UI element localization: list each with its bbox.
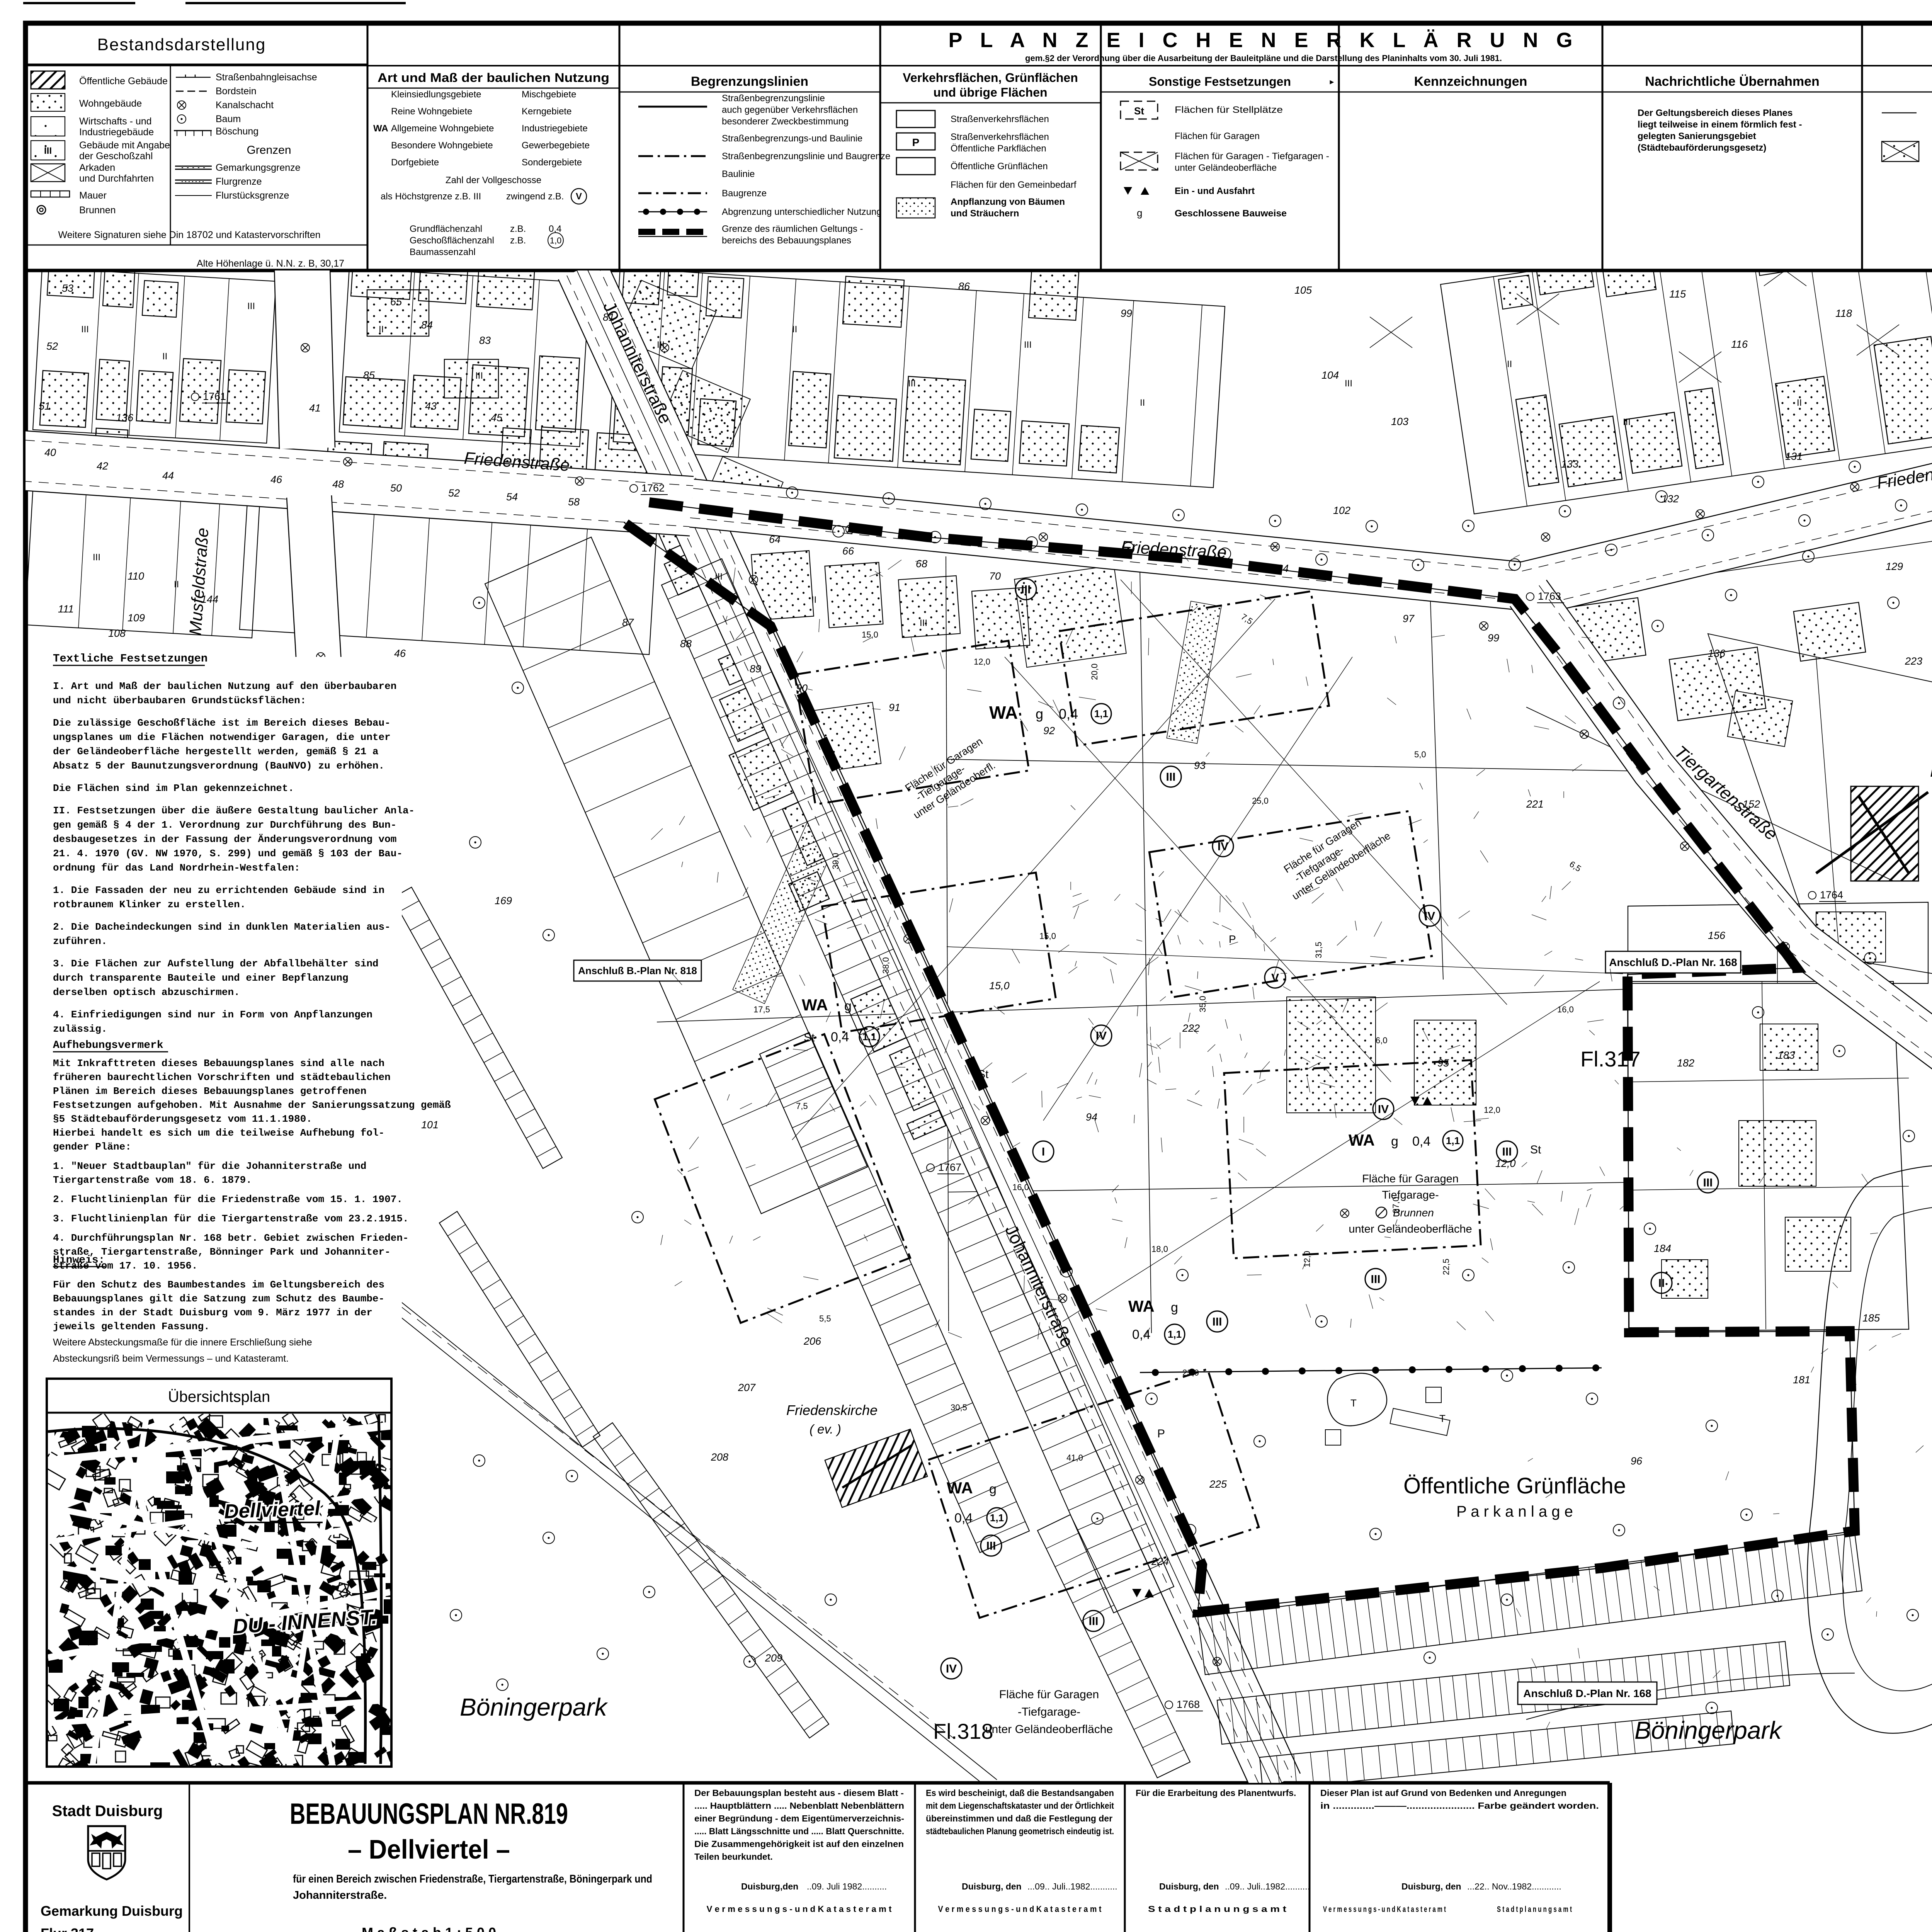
svg-text:Baumassenzahl: Baumassenzahl <box>410 247 476 257</box>
svg-text:besonderer Zweckbestimmung: besonderer Zweckbestimmung <box>722 116 849 127</box>
svg-text:III: III <box>1021 583 1031 596</box>
svg-text:94: 94 <box>1086 1111 1097 1123</box>
svg-text:1,1: 1,1 <box>1168 1328 1182 1340</box>
svg-text:Flächen für Stellplätze: Flächen für Stellplätze <box>1175 105 1283 115</box>
svg-text:0,4: 0,4 <box>954 1511 973 1526</box>
svg-text:III: III <box>1371 1273 1380 1286</box>
svg-text:WA: WA <box>1128 1297 1155 1315</box>
svg-text:183: 183 <box>1777 1049 1795 1061</box>
svg-text:IV: IV <box>1424 910 1435 923</box>
svg-text:Kennzeichnungen: Kennzeichnungen <box>1414 74 1527 89</box>
svg-text:und Sträuchern: und Sträuchern <box>951 208 1019 219</box>
svg-text:132: 132 <box>1662 493 1679 505</box>
svg-text:Tiergartenstraße vom 18. 6. 18: Tiergartenstraße vom 18. 6. 1879. <box>53 1174 252 1186</box>
svg-text:41: 41 <box>309 402 321 414</box>
svg-text:1763: 1763 <box>1538 590 1561 602</box>
svg-text:..... Blatt Längsschnitte und: ..... Blatt Längsschnitte und ..... Blat… <box>694 1826 904 1836</box>
svg-text:zulässig.: zulässig. <box>53 1023 107 1035</box>
svg-text:St: St <box>804 1031 815 1044</box>
svg-text:auch gegenüber Verkehrsflächen: auch gegenüber Verkehrsflächen <box>722 105 858 115</box>
svg-text:Art und Maß der baulichen Nutz: Art und Maß der baulichen Nutzung <box>378 71 609 85</box>
svg-text:184: 184 <box>1654 1243 1671 1254</box>
svg-text:unter Geländeoberfläche: unter Geländeoberfläche <box>1349 1223 1472 1235</box>
svg-text:St: St <box>1134 105 1144 117</box>
svg-text:Teilen beurkundet.: Teilen beurkundet. <box>694 1852 773 1862</box>
svg-text:Anschluß D.-Plan Nr. 168: Anschluß D.-Plan Nr. 168 <box>1609 956 1737 968</box>
svg-text:und nicht überbaubaren Grundst: und nicht überbaubaren Grundstücksfläche… <box>53 695 306 706</box>
svg-text:Industriegebäude: Industriegebäude <box>79 127 154 138</box>
svg-text:16,0: 16,0 <box>1557 1005 1574 1014</box>
svg-text:3. Fluchtlinienplan für die Ti: 3. Fluchtlinienplan für die Tiergartenst… <box>53 1213 409 1225</box>
svg-text:40: 40 <box>44 447 56 458</box>
svg-text:T: T <box>1439 1413 1446 1424</box>
svg-text:Wirtschafts - und: Wirtschafts - und <box>79 116 152 127</box>
svg-text:27,0: 27,0 <box>1391 1197 1401 1213</box>
svg-text:35,0: 35,0 <box>1198 996 1207 1012</box>
svg-text:95: 95 <box>1437 1057 1449 1069</box>
svg-text:50: 50 <box>390 482 402 494</box>
svg-text:P: P <box>1229 933 1236 945</box>
svg-text:III: III <box>1212 1316 1222 1328</box>
svg-text:12,0: 12,0 <box>1484 1105 1500 1115</box>
svg-text:►: ► <box>1328 78 1335 86</box>
svg-text:12,0: 12,0 <box>1302 1251 1312 1267</box>
svg-text:87: 87 <box>622 617 634 628</box>
svg-text:99: 99 <box>1121 308 1132 319</box>
svg-text:jeweils geltenden Fassung.: jeweils geltenden Fassung. <box>53 1321 210 1332</box>
svg-text:Der Geltungsbereich dieses Pla: Der Geltungsbereich dieses Planes <box>1638 108 1793 118</box>
svg-text:108: 108 <box>108 628 126 639</box>
svg-text:derselben optisch abzuschirmen: derselben optisch abzuschirmen. <box>53 986 240 998</box>
svg-text:Straßenverkehrsflächen: Straßenverkehrsflächen <box>951 114 1049 124</box>
svg-text:bereichs des Bebauungsplanes: bereichs des Bebauungsplanes <box>722 235 851 246</box>
svg-text:übereinstimmen und daß die Fes: übereinstimmen und daß die Festlegung de… <box>926 1813 1112 1823</box>
svg-text:4. Einfriedigungen sind nur in: 4. Einfriedigungen sind nur in Form von … <box>53 1009 372 1020</box>
svg-text:Straßenbegrenzungslinie: Straßenbegrenzungslinie <box>722 93 825 104</box>
svg-text:30,5: 30,5 <box>951 1403 967 1412</box>
svg-text:III: III <box>81 324 89 335</box>
svg-text:z.B.: z.B. <box>510 235 526 246</box>
svg-text:144: 144 <box>201 594 218 605</box>
svg-text:103: 103 <box>1391 416 1408 427</box>
svg-text:96: 96 <box>1631 1455 1643 1467</box>
svg-text:15,0: 15,0 <box>1039 931 1056 941</box>
svg-text:einer Begründung - dem Eigen: einer Begründung - dem Eigentümerverzeic… <box>694 1813 904 1823</box>
svg-text:III: III <box>715 571 723 582</box>
svg-text:WA: WA <box>802 996 828 1014</box>
svg-text:131: 131 <box>1785 451 1803 462</box>
svg-text:0,4: 0,4 <box>1412 1134 1430 1149</box>
svg-text:Die Zusammengehörigkeit ist a: Die Zusammengehörigkeit ist auf den einz… <box>694 1839 904 1849</box>
svg-text:WA: WA <box>989 702 1018 723</box>
svg-text:221: 221 <box>1526 798 1544 810</box>
svg-text:58: 58 <box>568 496 580 508</box>
svg-text:und übrige Flächen: und übrige Flächen <box>933 85 1047 99</box>
svg-text:Böningerpark: Böningerpark <box>1634 1716 1783 1744</box>
svg-text:g: g <box>1171 1300 1178 1315</box>
svg-text:115: 115 <box>1669 288 1686 300</box>
svg-text:182: 182 <box>1677 1057 1694 1069</box>
svg-text:II: II <box>792 324 797 335</box>
svg-text:Bebauungsplanes gilt die Satzu: Bebauungsplanes gilt die Satzung zum Sch… <box>53 1293 384 1304</box>
svg-text:V e r m e s s u n g s - u n: V e r m e s s u n g s - u n d K a t a s … <box>707 1904 892 1914</box>
svg-text:65: 65 <box>390 296 402 308</box>
svg-text:Flurgrenze: Flurgrenze <box>216 176 262 187</box>
svg-text:Absatz 5 der Baunutzungsverord: Absatz 5 der Baunutzungsverordnung (BauN… <box>53 760 384 772</box>
svg-text:16,0: 16,0 <box>1012 1182 1029 1192</box>
svg-text:17,5: 17,5 <box>753 1005 770 1014</box>
svg-text:208: 208 <box>711 1451 728 1463</box>
svg-text:68: 68 <box>916 558 927 570</box>
svg-text:Die zulässige Geschoßfläche is: Die zulässige Geschoßfläche ist im Berei… <box>53 717 391 729</box>
svg-text:2. Die Dacheindeckungen sind i: 2. Die Dacheindeckungen sind in dunklen … <box>53 921 391 933</box>
svg-text:Duisburg, den: Duisburg, den <box>1401 1881 1461 1891</box>
svg-text:II: II <box>1507 359 1512 369</box>
svg-text:g: g <box>989 1482 997 1497</box>
svg-text:Geschlossene Bauweise: Geschlossene Bauweise <box>1175 208 1287 219</box>
svg-text:5,5: 5,5 <box>819 1314 831 1323</box>
svg-text:Grenzen: Grenzen <box>247 144 291 156</box>
svg-text:Fl.317: Fl.317 <box>1580 1047 1641 1071</box>
svg-text:44: 44 <box>162 470 174 481</box>
svg-text:15,0: 15,0 <box>989 980 1010 992</box>
svg-text:Dellviertel: Dellviertel <box>224 1497 321 1523</box>
svg-text:81: 81 <box>603 311 614 323</box>
svg-text:II: II <box>1658 1277 1665 1290</box>
svg-text:Hierbei handelt es sich um die: Hierbei handelt es sich um die teilweise… <box>53 1127 384 1139</box>
svg-text:...09.. Juli..1982...........: ...09.. Juli..1982........... <box>1027 1881 1117 1891</box>
svg-text:Fläche für Garagen: Fläche für Garagen <box>999 1688 1099 1701</box>
svg-text:18,0: 18,0 <box>1151 1244 1168 1254</box>
svg-text:gender Pläne:: gender Pläne: <box>53 1141 131 1153</box>
svg-text:1768: 1768 <box>1177 1699 1200 1710</box>
svg-text:Straßenbegrenzungs-und Baulin: Straßenbegrenzungs-und Baulinie <box>722 133 862 144</box>
svg-text:Straßenbegrenzungslinie und B: Straßenbegrenzungslinie und Baugrenze <box>722 151 890 162</box>
svg-text:..09. Juli 1982..........: ..09. Juli 1982.......... <box>807 1881 887 1891</box>
svg-text:Geschoßflächenzahl: Geschoßflächenzahl <box>410 235 494 246</box>
svg-text:38,0: 38,0 <box>881 957 891 974</box>
svg-text:II: II <box>174 579 179 590</box>
svg-text:Mit Inkrafttreten dieses Bebau: Mit Inkrafttreten dieses Bebauungsplanes… <box>53 1058 384 1069</box>
svg-text:III: III <box>1502 1146 1512 1158</box>
svg-text:Johanniterstraße.: Johanniterstraße. <box>293 1889 387 1901</box>
svg-text:Sondergebiete: Sondergebiete <box>522 157 582 168</box>
svg-text:Zahl der Vollgeschosse: Zahl der Vollgeschosse <box>446 175 541 185</box>
svg-text:Bordstein: Bordstein <box>216 86 257 97</box>
svg-text:90: 90 <box>796 682 808 694</box>
svg-text:Dorfgebiete: Dorfgebiete <box>391 157 439 168</box>
svg-text:224: 224 <box>1151 1556 1169 1567</box>
svg-text:223: 223 <box>1905 655 1922 667</box>
svg-text:129: 129 <box>1886 561 1903 572</box>
svg-text:WA: WA <box>1349 1131 1375 1149</box>
svg-text:41,0: 41,0 <box>1066 1453 1083 1463</box>
svg-text:105: 105 <box>1294 284 1312 296</box>
svg-text:Duisburg, den: Duisburg, den <box>962 1881 1022 1891</box>
svg-text:der Geländeoberfläche hergeste: der Geländeoberfläche hergestellt werden… <box>53 746 379 757</box>
svg-text:in ..............———..........: in ..............———....................… <box>1320 1801 1599 1811</box>
svg-text:Es wird bescheinigt, daß die B: Es wird bescheinigt, daß die Bestandsang… <box>926 1788 1114 1798</box>
svg-text:Öffentliche Parkflächen: Öffentliche Parkflächen <box>951 143 1046 154</box>
svg-text:Kleinsiedlungsgebiete: Kleinsiedlungsgebiete <box>391 89 481 100</box>
svg-text:Allgemeine Wohngebiete: Allgemeine Wohngebiete <box>391 123 494 134</box>
svg-text:Kirche: Kirche <box>1930 762 1932 780</box>
svg-text:z.B.: z.B. <box>510 224 526 234</box>
svg-text:III: III <box>920 618 927 628</box>
svg-text:P: P <box>1157 1427 1165 1440</box>
svg-text:Reine Wohngebiete: Reine Wohngebiete <box>391 106 472 117</box>
svg-text:Flur 317: Flur 317 <box>41 1925 94 1932</box>
svg-text:Duisburg, den: Duisburg, den <box>1159 1881 1219 1891</box>
svg-text:Gemarkungsgrenze: Gemarkungsgrenze <box>216 162 301 173</box>
svg-text:169: 169 <box>495 895 512 906</box>
svg-text:Stadt Duisburg: Stadt Duisburg <box>52 1803 163 1820</box>
svg-text:II: II <box>162 351 167 362</box>
svg-text:89: 89 <box>750 663 761 675</box>
svg-text:97: 97 <box>1403 613 1415 624</box>
svg-text:Öffentliche Grünflächen: Öffentliche Grünflächen <box>951 161 1048 172</box>
svg-text:III: III <box>1088 1615 1098 1628</box>
svg-text:0,4: 0,4 <box>831 1030 849 1044</box>
svg-text:– Dellviertel –: – Dellviertel – <box>348 1834 510 1864</box>
svg-text:118: 118 <box>1835 308 1852 319</box>
svg-text:g: g <box>1137 207 1142 219</box>
svg-text:III: III <box>986 1540 996 1553</box>
svg-text:1767: 1767 <box>938 1162 961 1173</box>
svg-text:Der Bebauungsplan besteht aus: Der Bebauungsplan besteht aus - diesem B… <box>694 1788 904 1798</box>
svg-text:53: 53 <box>62 282 73 294</box>
svg-text:Anschluß D.-Plan Nr. 168: Anschluß D.-Plan Nr. 168 <box>1523 1687 1651 1699</box>
svg-text:Dieser Plan ist auf Grund von: Dieser Plan ist auf Grund von Bedenken u… <box>1320 1788 1566 1798</box>
svg-text:g: g <box>844 999 852 1014</box>
svg-text:Flurstücksgrenze: Flurstücksgrenze <box>216 190 289 201</box>
svg-text:V: V <box>1271 972 1279 985</box>
svg-text:durch transparente Bauteile un: durch transparente Bauteile und einer Be… <box>53 972 349 984</box>
svg-text:85: 85 <box>363 369 375 381</box>
svg-text:54: 54 <box>506 491 518 503</box>
svg-text:Für den Schutz des Baumbestand: Für den Schutz des Baumbestandes im Gelt… <box>53 1279 384 1291</box>
svg-text:23,0: 23,0 <box>1182 1368 1199 1378</box>
svg-text:V e r m e s s u n g s - u n d: V e r m e s s u n g s - u n d K a t a s … <box>938 1904 1102 1914</box>
svg-text:§5 Städtebauförderungsgesetz v: §5 Städtebauförderungsgesetz vom 11.1.19… <box>53 1113 312 1125</box>
svg-text:84: 84 <box>421 319 433 331</box>
svg-text:WA: WA <box>947 1479 973 1497</box>
svg-text:desbaugesetzes in der Fassung: desbaugesetzes in der Fassung der Änderu… <box>53 833 396 845</box>
svg-text:92: 92 <box>1043 725 1055 736</box>
svg-text:Öffentliche Grünfläche: Öffentliche Grünfläche <box>1403 1473 1626 1498</box>
svg-text:III: III <box>44 146 52 156</box>
svg-text:P L A N Z E I C H E N E R K L: P L A N Z E I C H E N E R K L Ä R U N G <box>948 29 1578 52</box>
svg-text:51: 51 <box>39 400 50 412</box>
svg-text:mit dem Liegenschaftskataster: mit dem Liegenschaftskataster und der Ör… <box>926 1801 1114 1811</box>
svg-text:P: P <box>912 136 920 148</box>
svg-text:15,0: 15,0 <box>862 630 878 639</box>
svg-text:Begrenzungslinien: Begrenzungslinien <box>691 74 808 89</box>
svg-text:Böningerpark: Böningerpark <box>460 1693 608 1721</box>
svg-text:64: 64 <box>769 534 781 545</box>
svg-text:25,0: 25,0 <box>1252 796 1269 806</box>
svg-text:V: V <box>576 191 582 202</box>
svg-text:12,0: 12,0 <box>974 657 990 667</box>
svg-text:zuführen.: zuführen. <box>53 935 107 947</box>
svg-text:III: III <box>908 378 916 389</box>
svg-text:2. Fluchtlinienplan für die Fr: 2. Fluchtlinienplan für die Friedenstraß… <box>53 1194 403 1205</box>
svg-text:99: 99 <box>1488 632 1499 644</box>
svg-text:Die Flächen sind im Plan geken: Die Flächen sind im Plan gekennzeichnet. <box>53 782 294 794</box>
svg-text:ordnung für das Land Nordrhein: ordnung für das Land Nordrhein-Westfalen… <box>53 862 300 874</box>
svg-text:Verkehrsflächen, Grünflächen: Verkehrsflächen, Grünflächen <box>903 71 1078 85</box>
svg-text:Friedenskirche: Friedenskirche <box>786 1402 878 1418</box>
svg-text:Besondere Wohngebiete: Besondere Wohngebiete <box>391 140 493 151</box>
svg-text:der Geschoßzahl: der Geschoßzahl <box>79 151 153 162</box>
svg-text:III: III <box>93 552 100 563</box>
svg-text:gelegten Sanierungsgebiet: gelegten Sanierungsgebiet <box>1638 131 1756 141</box>
svg-text:66: 66 <box>842 545 854 557</box>
svg-text:Wohngebäude: Wohngebäude <box>79 98 142 109</box>
svg-text:88: 88 <box>680 638 692 650</box>
svg-text:WA: WA <box>373 123 388 134</box>
svg-text:225: 225 <box>1209 1478 1227 1490</box>
svg-text:IV: IV <box>946 1663 957 1675</box>
svg-text:IV: IV <box>1096 1030 1107 1043</box>
svg-text:Gewerbegebiete: Gewerbegebiete <box>522 140 590 151</box>
svg-text:1,1: 1,1 <box>1094 708 1108 719</box>
svg-text:1761: 1761 <box>203 391 226 402</box>
svg-text:II. Festsetzungen über die äuß: II. Festsetzungen über die äußere Gestal… <box>53 805 415 816</box>
svg-text:städtebaulichen Planung geomet: städtebaulichen Planung geometrisch eind… <box>926 1826 1114 1836</box>
svg-text:104: 104 <box>1321 369 1339 381</box>
svg-text:liegt teilweise in einem förml: liegt teilweise in einem förmlich fest - <box>1638 119 1802 130</box>
svg-text:Mischgebiete: Mischgebiete <box>522 89 576 100</box>
svg-text:S t a d t p l a n u n g s a m: S t a d t p l a n u n g s a m t <box>1497 1905 1572 1914</box>
svg-text:Weitere Signaturen siehe Din 1: Weitere Signaturen siehe Din 18702 und K… <box>58 230 320 240</box>
svg-text:83: 83 <box>479 335 491 346</box>
svg-text:III: III <box>1703 1177 1713 1189</box>
svg-text:rotbraunem Klinker zu erstelle: rotbraunem Klinker zu erstellen. <box>53 899 246 910</box>
svg-text:II: II <box>1797 398 1802 408</box>
svg-text:207: 207 <box>738 1382 756 1393</box>
svg-text:31,5: 31,5 <box>1314 942 1323 958</box>
svg-text:Weitere Absteckungsmaße für: Weitere Absteckungsmaße für die innere E… <box>53 1337 312 1348</box>
svg-text:Übersichtsplan: Übersichtsplan <box>168 1388 270 1405</box>
svg-text:Anschluß B.-Plan Nr. 818: Anschluß B.-Plan Nr. 818 <box>578 965 697 976</box>
svg-text:P a r k a n l a g e: P a r k a n l a g e <box>1456 1503 1573 1520</box>
svg-text:III: III <box>1623 417 1631 427</box>
svg-text:St: St <box>1530 1143 1541 1156</box>
svg-text:110: 110 <box>128 570 144 582</box>
svg-text:für einen Bereich zwischen Fri: für einen Bereich zwischen Friedenstraße… <box>293 1873 652 1885</box>
svg-text:II: II <box>1140 398 1145 408</box>
svg-text:Aufhebungsvermerk: Aufhebungsvermerk <box>53 1039 163 1051</box>
svg-text:Baum: Baum <box>216 114 241 124</box>
svg-text:Flächen für den Gemeinbedarf: Flächen für den Gemeinbedarf <box>951 180 1077 190</box>
svg-text:45: 45 <box>491 412 503 423</box>
svg-text:Für die Erarbeitung des Plane: Für die Erarbeitung des Planentwurfs. <box>1136 1788 1296 1798</box>
svg-text:g: g <box>1391 1134 1398 1149</box>
svg-text:gem.§2 der Verordnung über die: gem.§2 der Verordnung über die Ausarbeit… <box>1025 53 1502 63</box>
svg-text:..... Hauptblättern ..... Neb: ..... Hauptblättern ..... Nebenblatt Neb… <box>694 1801 904 1811</box>
svg-text:Plänen im Bereich dieses Bebau: Plänen im Bereich dieses Bebauungsplanes… <box>53 1085 366 1097</box>
svg-text:12,0: 12,0 <box>1495 1158 1516 1169</box>
svg-text:Textliche Festsetzungen: Textliche Festsetzungen <box>53 652 207 665</box>
svg-text:als Höchstgrenze z.B. III: als Höchstgrenze z.B. III <box>381 191 481 202</box>
svg-text:Absteckungsriß beim Vermessu: Absteckungsriß beim Vermessungs – und Ka… <box>53 1353 289 1364</box>
svg-text:111: 111 <box>58 603 74 615</box>
svg-text:standes in der Stadt Duisburg: standes in der Stadt Duisburg vom 9. Mär… <box>53 1307 372 1318</box>
svg-text:116: 116 <box>1731 338 1748 350</box>
svg-text:Straßenbahngleisachse: Straßenbahngleisachse <box>216 72 317 83</box>
svg-text:T: T <box>1350 1397 1357 1409</box>
svg-text:39,0: 39,0 <box>831 853 840 869</box>
svg-text:Straßenverkehrsflächen: Straßenverkehrsflächen <box>951 132 1049 142</box>
svg-text:Grenze des räumlichen Geltung: Grenze des räumlichen Geltungs - <box>722 224 863 234</box>
svg-text:und Durchfahrten: und Durchfahrten <box>79 173 154 184</box>
svg-text:102: 102 <box>1333 505 1350 516</box>
svg-text:Nachrichtliche Übernahmen: Nachrichtliche Übernahmen <box>1645 74 1820 89</box>
svg-text:185: 185 <box>1862 1312 1880 1324</box>
svg-text:43: 43 <box>425 400 437 412</box>
svg-text:Alte Höhenlage ü. N.N. z. B, 3: Alte Höhenlage ü. N.N. z. B, 30,17 <box>197 258 344 269</box>
svg-text:..09.. Juli..1982..........: ..09.. Juli..1982.......... <box>1225 1881 1310 1891</box>
svg-text:Anpflanzung von Bäumen: Anpflanzung von Bäumen <box>951 197 1065 207</box>
svg-text:Hinweis:: Hinweis: <box>53 1254 105 1266</box>
svg-text:Ein - und Ausfahrt: Ein - und Ausfahrt <box>1175 186 1255 196</box>
svg-text:(Städtebauförderungsgesetz): (Städtebauförderungsgesetz) <box>1638 143 1766 153</box>
svg-text:( ev. ): ( ev. ) <box>810 1422 841 1436</box>
svg-text:Mauer: Mauer <box>79 190 107 201</box>
svg-text:5,0: 5,0 <box>1414 750 1426 759</box>
svg-text:1. Die Fassaden der neu zu err: 1. Die Fassaden der neu zu errichtenden … <box>53 884 384 896</box>
svg-text:22,5: 22,5 <box>1441 1259 1451 1275</box>
svg-text:Kerngebiete: Kerngebiete <box>522 106 571 117</box>
svg-text:IV: IV <box>1378 1103 1389 1116</box>
svg-text:4. Durchführungsplan Nr. 168 b: 4. Durchführungsplan Nr. 168 betr. Gebie… <box>53 1232 409 1244</box>
svg-text:Brunnen: Brunnen <box>79 205 116 216</box>
svg-text:Baulinie: Baulinie <box>722 169 755 179</box>
svg-text:ungsplanes um die Flächen notw: ungsplanes um die Flächen notwendiger Ga… <box>53 731 391 743</box>
svg-text:93: 93 <box>1194 760 1206 771</box>
svg-text:46: 46 <box>270 474 282 485</box>
svg-text:...22.. Nov..1982............: ...22.. Nov..1982............ <box>1467 1881 1561 1891</box>
svg-text:70: 70 <box>989 570 1001 582</box>
svg-text:Bestandsdarstellung: Bestandsdarstellung <box>97 35 266 54</box>
svg-text:Flächen für Garagen: Flächen für Garagen <box>1175 131 1260 141</box>
svg-text:III: III <box>475 371 483 381</box>
svg-text:1,1: 1,1 <box>862 1031 876 1043</box>
svg-text:1,1: 1,1 <box>990 1512 1004 1524</box>
svg-text:Fl.318: Fl.318 <box>933 1719 993 1743</box>
svg-text:52: 52 <box>46 340 58 352</box>
svg-text:1. "Neuer Stadtbauplan" für di: 1. "Neuer Stadtbauplan" für die Johannit… <box>53 1160 366 1172</box>
svg-text:52: 52 <box>448 487 460 499</box>
svg-text:Abgrenzung unterschiedlicher: Abgrenzung unterschiedlicher Nutzung <box>722 207 882 217</box>
svg-text:Fläche für Garagen: Fläche für Garagen <box>1362 1173 1459 1185</box>
svg-text:86: 86 <box>958 281 970 292</box>
svg-text:1,0: 1,0 <box>550 236 562 245</box>
svg-text:20,0: 20,0 <box>1090 663 1099 680</box>
svg-text:101: 101 <box>421 1119 439 1131</box>
svg-text:1762: 1762 <box>641 482 665 494</box>
svg-text:BEBAUUNGSPLAN NR.819: BEBAUUNGSPLAN NR.819 <box>290 1798 568 1830</box>
svg-text:Flächen für Garagen - Tiefgara: Flächen für Garagen - Tiefgaragen - <box>1175 151 1329 162</box>
svg-text:209: 209 <box>765 1652 782 1664</box>
svg-text:zwingend z.B.: zwingend z.B. <box>506 191 564 202</box>
svg-text:0,4: 0,4 <box>1132 1327 1150 1342</box>
svg-text:222: 222 <box>1182 1022 1200 1034</box>
svg-text:III: III <box>1345 378 1352 389</box>
svg-text:M a ß s t a b 1 : 5 0 0: M a ß s t a b 1 : 5 0 0 <box>362 1925 496 1932</box>
svg-text:133: 133 <box>1561 458 1578 470</box>
